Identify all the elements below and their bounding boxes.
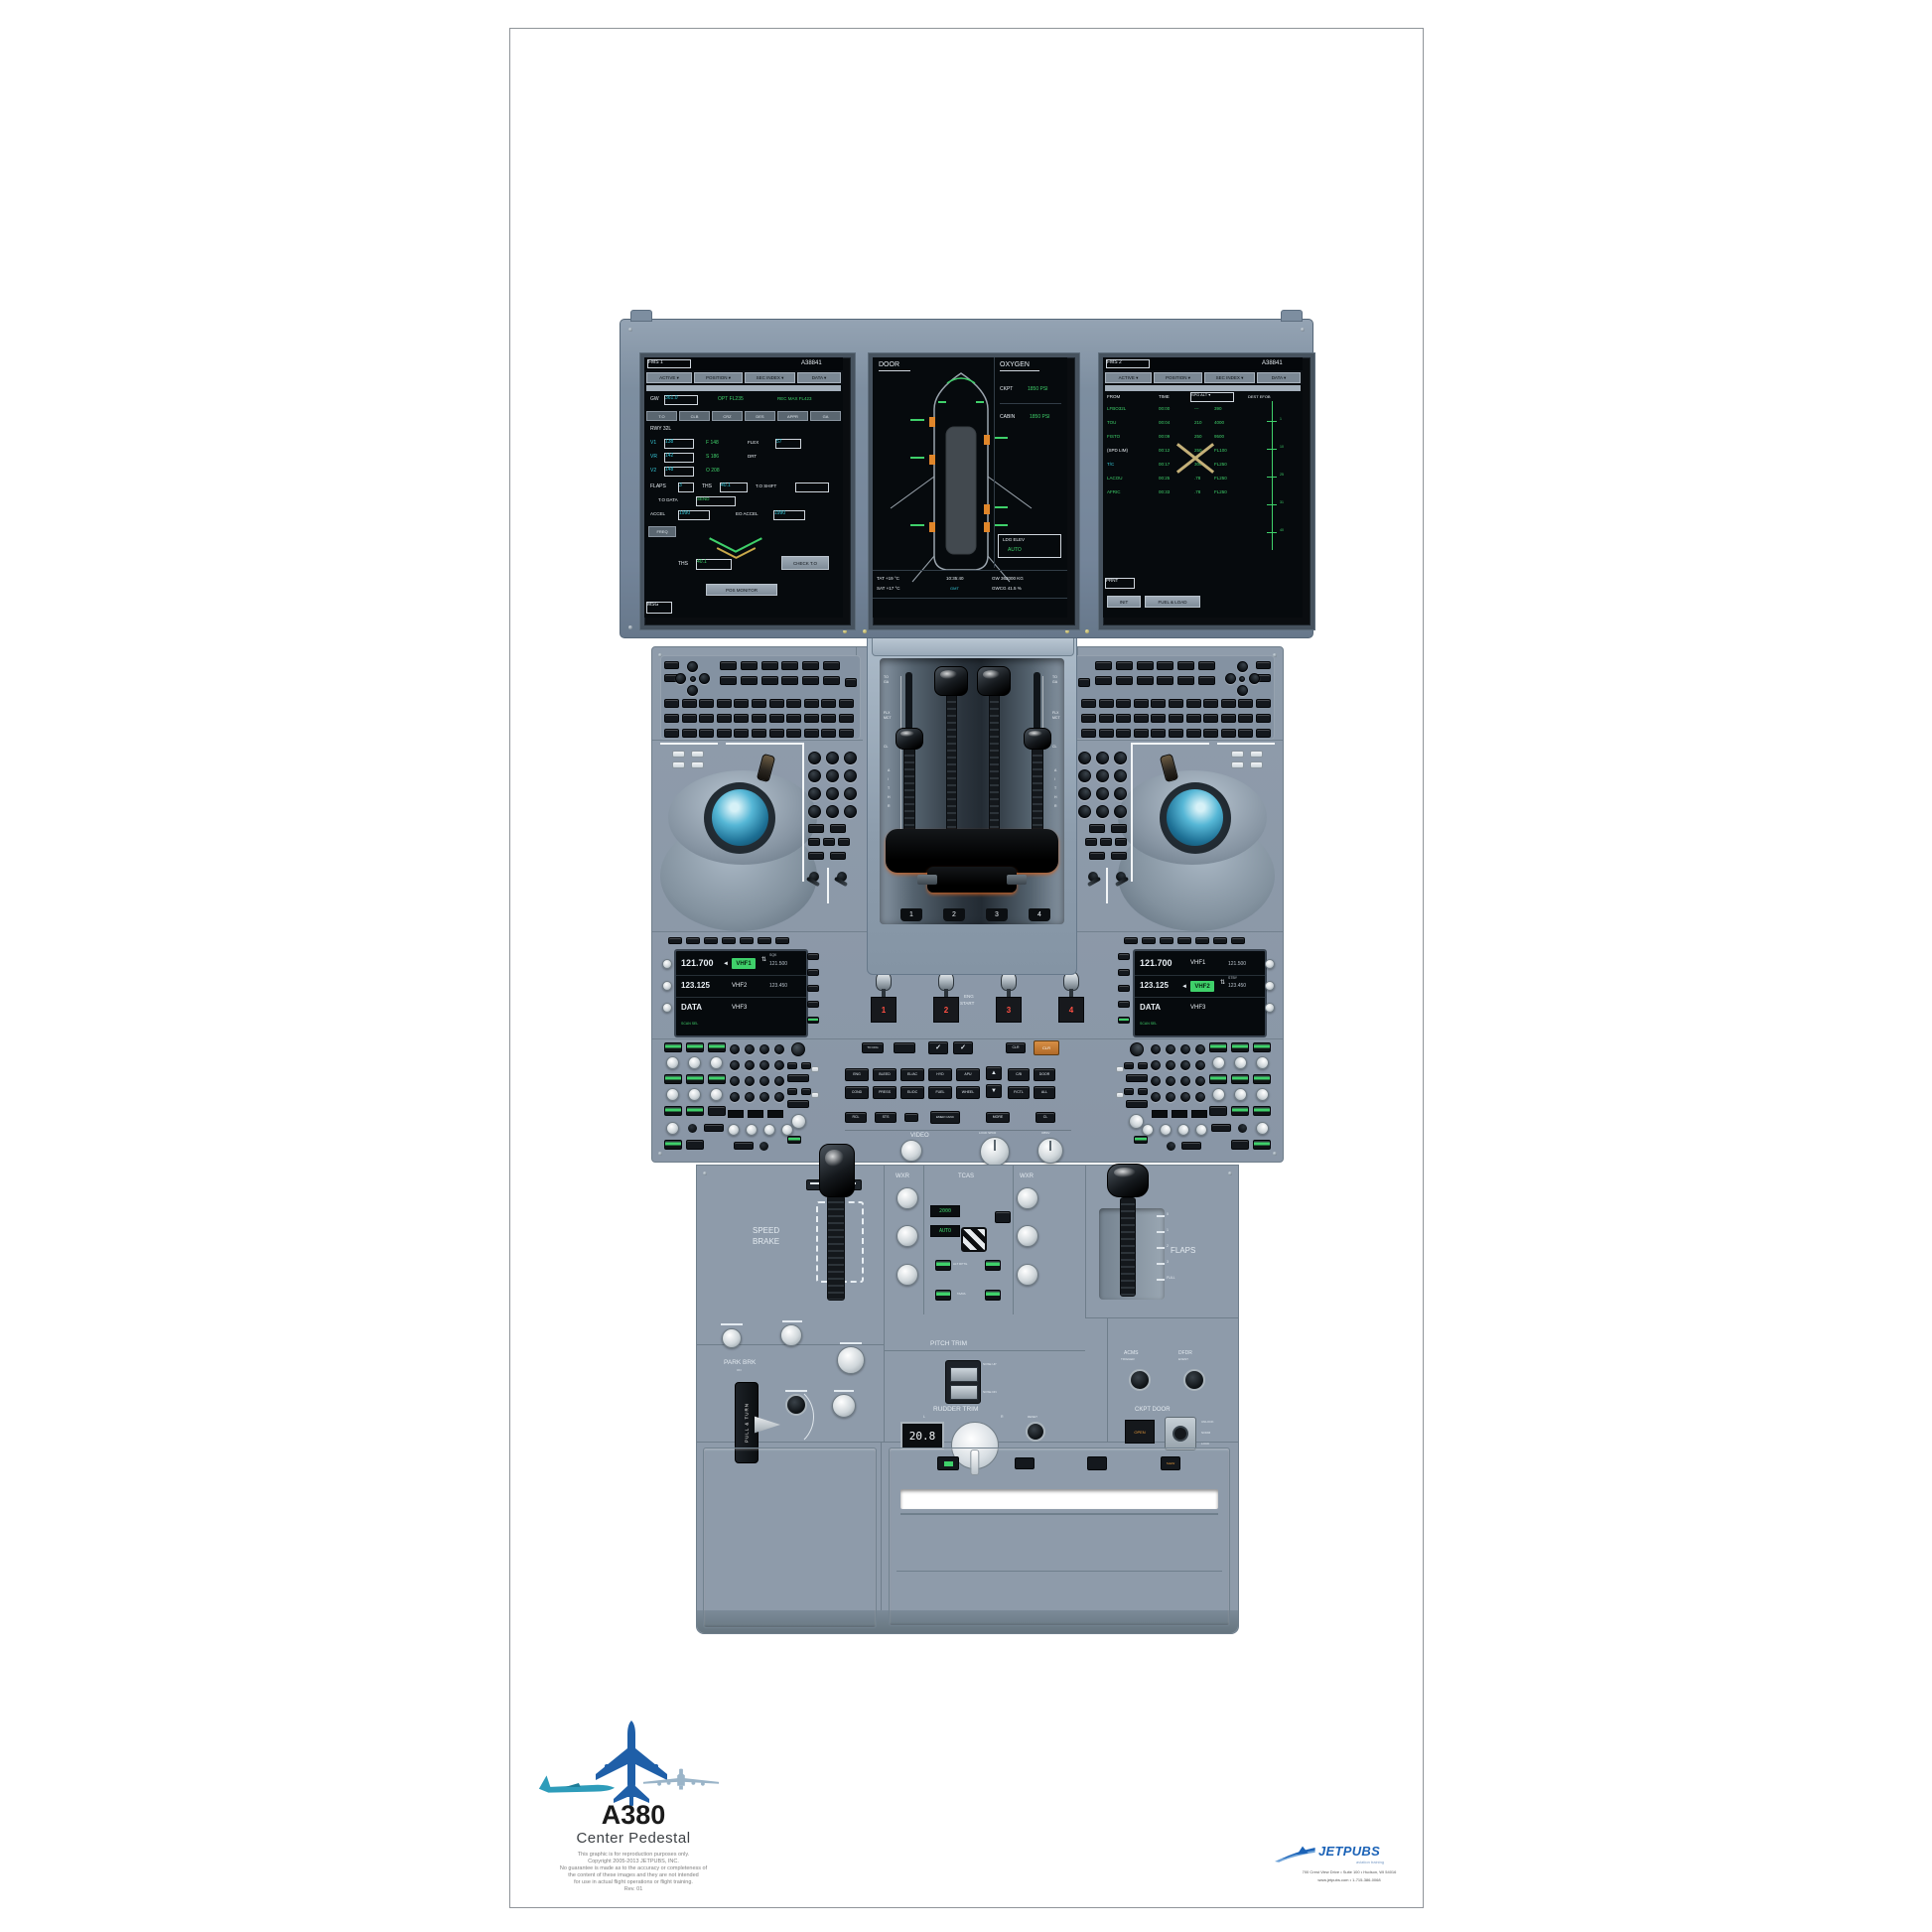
trackball-module-left xyxy=(660,743,861,935)
panel-detail: FMS 1 xyxy=(647,359,691,368)
panel-detail xyxy=(897,1571,1222,1572)
wxr-mode-knob xyxy=(897,1264,918,1286)
wxr-tilt-knob xyxy=(897,1225,918,1247)
panel-detail: 00:33 xyxy=(1159,490,1170,495)
acp-knob xyxy=(745,1076,755,1086)
numpad-key xyxy=(826,805,839,818)
divider-line xyxy=(1106,868,1108,903)
pedestal-lower-body: SPEEDBRAKE WXRTCASWXR2000AUTOALT RPTGTA/… xyxy=(696,1165,1239,1634)
speed-brake-lever-knob xyxy=(819,1144,855,1197)
panel-detail xyxy=(1272,401,1273,550)
jetpubs-logo-swoosh xyxy=(1275,1846,1316,1863)
panel-detail: DATA ▾ xyxy=(797,372,841,383)
acp-knob xyxy=(1151,1060,1161,1070)
panel-detail xyxy=(845,1130,1071,1131)
acp-knob xyxy=(774,1060,784,1070)
ecam-control-panel: TO CFG✓✓CLRCLRENGBLEEDEL/ACHYDAPU▲C/BDOO… xyxy=(837,1036,1093,1162)
acp-call-key xyxy=(1253,1042,1271,1052)
acp-key xyxy=(1124,1088,1134,1095)
numpad-key xyxy=(844,805,857,818)
acp-volume-knob xyxy=(1177,1124,1189,1136)
panel-detail: DEST EFOB xyxy=(1248,395,1271,399)
deco xyxy=(660,935,821,1040)
panel-detail: 31 xyxy=(1280,501,1284,505)
panel-detail xyxy=(795,483,829,492)
ecp-key xyxy=(904,1113,918,1122)
numpad-key xyxy=(1114,752,1127,764)
rudder-trim-reset-label: RESET xyxy=(1028,1416,1037,1419)
panel-detail xyxy=(994,357,995,568)
panel-detail xyxy=(1281,310,1303,322)
flaps-lever-knob xyxy=(1107,1164,1149,1197)
panel-detail: LDG ELEV xyxy=(1003,538,1025,543)
panel-detail: 57 xyxy=(775,439,801,449)
dpad-left-key xyxy=(1249,673,1260,684)
numpad-key xyxy=(1115,838,1127,846)
audio-control-panel-right xyxy=(1114,1040,1275,1158)
acp-key xyxy=(787,1062,797,1069)
bracket-line xyxy=(1133,743,1209,745)
cond-page-key: COND xyxy=(845,1086,869,1099)
panel-detail: H xyxy=(888,796,891,800)
speed-brake-label: SPEED xyxy=(753,1227,779,1235)
panel-detail: R xyxy=(1001,1416,1004,1420)
eng-1-fault-light: 1 xyxy=(871,997,897,1023)
panel-detail xyxy=(843,629,847,633)
acp-knob xyxy=(745,1044,755,1054)
acp-knob xyxy=(774,1092,784,1102)
check-key: ✓ xyxy=(953,1041,973,1054)
panel-detail: CABIN xyxy=(1000,415,1015,420)
dpad-down-key xyxy=(1237,685,1248,696)
panel-detail: THS xyxy=(678,562,688,567)
panel-detail: ACTIVE ▾ xyxy=(1105,372,1152,383)
panel-detail: 3 xyxy=(1167,1261,1169,1265)
deco: the content of these images and they are… xyxy=(534,1872,733,1879)
panel-detail xyxy=(1157,1263,1165,1265)
eldc-page-key: EL/DC xyxy=(900,1086,924,1099)
panel-detail: VR xyxy=(650,455,657,460)
panel-detail xyxy=(1157,1279,1165,1281)
panel-detail: DES xyxy=(745,411,775,421)
bracket-line xyxy=(726,743,802,745)
mfd-left-screen: FMS 1A38841ACTIVE ▾POSITION ▾SEC INDEX ▾… xyxy=(644,357,843,618)
display-bezel: FMS 1A38841ACTIVE ▾POSITION ▾SEC INDEX ▾… xyxy=(620,319,1313,638)
panel-detail: 10:35:40 xyxy=(946,577,964,582)
acp-volume-knob xyxy=(763,1124,775,1136)
acp-call-key xyxy=(1253,1106,1271,1116)
panel-detail: FLX xyxy=(884,712,890,716)
kccu-key xyxy=(1078,678,1090,687)
rmp-key xyxy=(1118,953,1130,960)
acp-call-key xyxy=(787,1136,801,1144)
panel-detail xyxy=(628,625,632,629)
panel-detail: 00:00 xyxy=(1159,407,1170,412)
deco xyxy=(1114,1040,1275,1158)
acp-knob xyxy=(1166,1060,1175,1070)
wxr-mode-knob xyxy=(1017,1264,1038,1286)
acp-volume-knob xyxy=(1256,1088,1269,1101)
panel-detail: 40.1 xyxy=(720,483,748,492)
panel-detail: FLEX xyxy=(748,441,759,446)
acp-key xyxy=(1181,1142,1201,1150)
acp-knob xyxy=(1180,1076,1190,1086)
hyd-page-key: HYD xyxy=(928,1068,952,1081)
panel-detail: (SPD LIM) xyxy=(1107,449,1128,454)
acp-knob xyxy=(1195,1060,1205,1070)
numpad-key xyxy=(808,805,821,818)
acp-key xyxy=(686,1140,704,1150)
panel-detail: 9500 xyxy=(1214,435,1224,440)
panel-detail xyxy=(900,1513,1218,1515)
clr-lit-key: CLR xyxy=(1034,1040,1059,1055)
acp-knob xyxy=(1180,1092,1190,1102)
panel-detail: PRNT xyxy=(1105,578,1135,589)
panel-detail: RWY 32L xyxy=(650,427,671,432)
alt-rptg-label: ALT RPTG xyxy=(953,1263,967,1266)
dpad-down-key xyxy=(687,685,698,696)
panel-detail xyxy=(1267,477,1277,478)
acp-knob xyxy=(759,1076,769,1086)
rmp-key xyxy=(1118,985,1130,992)
acp-volume-knob xyxy=(710,1088,723,1101)
panel-detail xyxy=(652,740,863,741)
dpad-right-key xyxy=(699,673,710,684)
pitch-trim-paddle-up xyxy=(950,1367,978,1382)
acp-knob xyxy=(730,1076,740,1086)
deco xyxy=(679,1786,683,1790)
acp-knob xyxy=(730,1092,740,1102)
acp-key xyxy=(1124,1062,1134,1069)
pitch-trim-label: PITCH TRIM xyxy=(930,1341,967,1348)
acp-knob xyxy=(1130,1042,1144,1056)
pitch-trim-switch xyxy=(945,1360,981,1404)
deco: No guarantee is made as to the accuracy … xyxy=(534,1865,733,1872)
panel-detail: GA xyxy=(1052,681,1057,685)
eng-start-label: START xyxy=(960,1002,974,1007)
acp-volume-knob xyxy=(781,1124,793,1136)
panel-detail: OXYGEN xyxy=(1000,361,1030,368)
numpad-key xyxy=(1111,852,1127,860)
panel-detail xyxy=(1301,328,1305,332)
ta-ra-key xyxy=(985,1290,1001,1301)
acp-volume-knob xyxy=(1160,1124,1172,1136)
panel-detail: R xyxy=(1054,805,1057,809)
rmp-key xyxy=(807,953,819,960)
acp-call-key xyxy=(664,1042,682,1052)
acp-key xyxy=(811,1066,819,1072)
numpad-key xyxy=(826,752,839,764)
acp-knob xyxy=(759,1044,769,1054)
wxr-right-label: WXR xyxy=(1020,1173,1034,1179)
panel-detail: A38841 xyxy=(801,360,822,366)
speed-brake-panel: SPEEDBRAKE xyxy=(697,1166,884,1344)
rmp-key xyxy=(807,985,819,992)
acp-key xyxy=(734,1142,754,1150)
video-label: VIDEO xyxy=(910,1133,929,1139)
panel-detail: FISTO xyxy=(1107,435,1120,440)
panel-detail xyxy=(1000,370,1039,371)
eng-2-fault-light: 2 xyxy=(933,997,959,1023)
panel-detail: 138 xyxy=(664,439,694,449)
acp-volume-knob xyxy=(1129,1114,1144,1129)
acp-key xyxy=(787,1100,809,1108)
xpdr-selector-knob xyxy=(961,1227,987,1252)
panel-detail: 1 xyxy=(1280,418,1282,422)
kccu-key xyxy=(845,678,857,687)
acp-key xyxy=(801,1088,811,1095)
rmp-key xyxy=(807,969,819,976)
up-arrow-key: ▲ xyxy=(986,1066,1002,1080)
acms-trigger-button xyxy=(1129,1369,1151,1391)
panel-detail xyxy=(873,570,1067,571)
panel-detail: 361.0 xyxy=(664,395,698,405)
printer-key xyxy=(937,1456,959,1470)
panel-detail: 1850 PSI xyxy=(1028,387,1048,392)
panel-detail: 25 xyxy=(1280,474,1284,478)
jetpubs-contact: www.jetpubs.com • 1-715-386-0068 xyxy=(1275,1877,1424,1882)
panel-detail xyxy=(628,328,632,332)
audio-control-panel-left xyxy=(660,1040,821,1158)
dpad-left-key xyxy=(675,673,686,684)
panel-detail xyxy=(646,385,841,391)
panel-detail: 4000 xyxy=(1214,421,1224,426)
kccu-white-key xyxy=(1250,761,1263,768)
poster-branding: A380 Center Pedestal This graphic is for… xyxy=(530,1709,768,1907)
acp-call-key xyxy=(686,1042,704,1052)
panel-detail: POSITION ▾ xyxy=(694,372,743,383)
panel-detail: MCT xyxy=(884,717,892,721)
acp-call-key xyxy=(1231,1074,1249,1084)
deco: DOOROXYGENCKPT1850 PSICABIN1850 PSILDG E… xyxy=(873,357,1067,618)
rmp-key xyxy=(1118,1001,1130,1008)
panel-detail: 250 xyxy=(1194,435,1202,440)
acp-key xyxy=(1116,1092,1124,1098)
pitch-trim-paddle-down xyxy=(950,1385,978,1400)
ecam-center-frame: DOOROXYGENCKPT1850 PSICABIN1850 PSILDG E… xyxy=(869,353,1079,629)
down-arrow-key: ▼ xyxy=(986,1084,1002,1098)
kccu-white-key xyxy=(691,751,704,758)
panel-detail: TO xyxy=(1052,676,1057,680)
brk-fan-knob xyxy=(722,1328,742,1348)
acp-knob xyxy=(759,1092,769,1102)
panel-detail: CLB xyxy=(679,411,710,421)
deco: SLEW xyxy=(881,1442,1238,1633)
kccu-key xyxy=(664,661,679,669)
acp-volume-knob xyxy=(1256,1122,1269,1135)
eng-3-fault-light: 3 xyxy=(996,997,1022,1023)
panel-detail: T.O xyxy=(646,411,677,421)
dpad-right-key xyxy=(1225,673,1236,684)
panel-detail xyxy=(873,598,1067,599)
panel-detail: R xyxy=(888,805,891,809)
acp-volume-knob xyxy=(1212,1056,1225,1069)
kccu-keyboard-right xyxy=(1074,655,1275,740)
kccu-rocker xyxy=(1160,754,1179,782)
thrust-lever-2-tab: 2 xyxy=(943,908,965,921)
acp-volume-knob xyxy=(1234,1088,1247,1101)
acp-volume-knob xyxy=(1142,1124,1154,1136)
panel-detail: FLAPS xyxy=(650,484,666,489)
printer-panel: SLEW xyxy=(881,1442,1238,1633)
rmp-right: 121.700VHF1121.500123.125◄VHF2⇅STBY123.4… xyxy=(1116,935,1277,1040)
panel-detail xyxy=(1000,403,1061,404)
acp-volume-knob xyxy=(710,1056,723,1069)
panel-detail: 00:17 xyxy=(1159,463,1170,468)
panel-detail: TO xyxy=(884,676,889,680)
panel-detail: OPT FL235 xyxy=(718,397,744,402)
panel-detail: V2 xyxy=(650,469,656,474)
panel-detail: FL100 xyxy=(1214,449,1227,454)
panel-detail: O 208 xyxy=(706,469,720,474)
acp-key xyxy=(787,1074,809,1082)
panel-detail: 1990 xyxy=(678,510,710,520)
acp-knob xyxy=(1180,1060,1190,1070)
park-brk-label: PARK BRK xyxy=(724,1360,756,1367)
poster-subtitle: Center Pedestal xyxy=(576,1830,690,1847)
panel-detail: GMT xyxy=(950,587,959,591)
deco xyxy=(643,1773,719,1785)
panel-knob xyxy=(780,1324,802,1346)
kccu-white-key xyxy=(672,761,685,768)
deco xyxy=(605,1764,610,1773)
thrust-lever-3-tab: 3 xyxy=(986,908,1008,921)
deco: 12ENGSTART34 xyxy=(861,967,1079,1038)
jetpubs-logo-text: JETPUBS xyxy=(1318,1844,1380,1859)
panel-detail xyxy=(630,310,652,322)
flaps-panel: FLAPS0123FULL xyxy=(1085,1166,1238,1317)
ta-ra-label: TA/RA xyxy=(957,1293,966,1296)
panel-detail: NORM xyxy=(1201,1432,1210,1435)
panel-detail: H xyxy=(1054,796,1057,800)
acp-knob xyxy=(1180,1044,1190,1054)
panel-detail: .78 xyxy=(1194,477,1200,482)
eng-4-fault-light: 4 xyxy=(1058,997,1084,1023)
tcas-key xyxy=(995,1211,1011,1223)
wxr-left-label: WXR xyxy=(896,1173,909,1179)
acp-call-key xyxy=(708,1074,726,1084)
jetpubs-branding: JETPUBS aviation training 700 Crest View… xyxy=(1275,1834,1424,1905)
numpad-key xyxy=(1114,787,1127,800)
emer-canc-key: EMER CANC xyxy=(930,1111,960,1124)
acms-label: ACMS xyxy=(1124,1351,1138,1356)
panel-detail: 1990 xyxy=(773,510,805,520)
deco xyxy=(1116,935,1277,1040)
acp-knob xyxy=(791,1042,805,1056)
panel-detail: POSITION ▾ xyxy=(1154,372,1202,383)
acp-key xyxy=(1116,1066,1124,1072)
dpad-up-key xyxy=(687,661,698,672)
loudspeaker-label: LOUD SPKR xyxy=(979,1132,996,1135)
acp-knob xyxy=(759,1060,769,1070)
acp-volume-knob xyxy=(1212,1088,1225,1101)
park-brake-panel: PARK BRKON PULL & TURN xyxy=(697,1320,884,1442)
deco: Copyright 2005-2013 JETPUBS, INC. xyxy=(534,1859,733,1865)
elac-page-key: EL/AC xyxy=(900,1068,924,1081)
mfd-right-screen: FMS 2A38841ACTIVE ▾POSITION ▾SEC INDEX ▾… xyxy=(1103,357,1303,618)
acp-knob xyxy=(1166,1076,1175,1086)
acp-volume-knob xyxy=(666,1056,679,1069)
acp-call-key xyxy=(1134,1136,1148,1144)
acp-key xyxy=(1138,1088,1148,1095)
kccu-rocker xyxy=(757,754,776,782)
deco xyxy=(691,1781,695,1785)
panel-detail: GA xyxy=(810,411,841,421)
thrust-lever-4-tab: 4 xyxy=(1029,908,1050,921)
eng-page-key: ENG xyxy=(845,1068,869,1081)
bracket-line xyxy=(1217,743,1275,745)
numpad-key xyxy=(808,752,821,764)
numpad-key xyxy=(1111,824,1127,833)
all-key: ALL xyxy=(1034,1086,1055,1099)
acp-volume-knob xyxy=(1256,1056,1269,1069)
panel-detail: V1 xyxy=(650,441,656,446)
acp-volume-knob xyxy=(1234,1056,1247,1069)
panel-detail: SAT +17 °C xyxy=(877,587,900,592)
acp-key xyxy=(1209,1106,1227,1116)
emer-flap-knob xyxy=(837,1346,865,1374)
numpad-key xyxy=(838,838,850,846)
rmp-left: 121.700◄VHF1⇅SQK121.500123.125VHF2123.45… xyxy=(660,935,821,1040)
fctl-page-key: F/CTL xyxy=(1008,1086,1030,1099)
trackball-module-right xyxy=(1074,743,1275,935)
panel-detail: T.O DATA xyxy=(658,498,678,503)
acp-readout xyxy=(1152,1110,1168,1118)
panel-detail: AUTO xyxy=(1008,548,1022,553)
acp-key xyxy=(787,1088,797,1095)
panel-detail xyxy=(1157,1247,1165,1249)
numpad-key xyxy=(844,787,857,800)
acp-knob xyxy=(1151,1092,1161,1102)
acp-call-key xyxy=(664,1106,682,1116)
deco xyxy=(701,1782,705,1786)
panel-detail: F 148 xyxy=(706,441,719,446)
dpad-center-key xyxy=(1240,676,1246,682)
panel-detail xyxy=(1267,532,1277,533)
acp-key xyxy=(704,1124,724,1132)
kccu-white-key xyxy=(691,761,704,768)
stowage-door xyxy=(703,1448,877,1628)
acp-toggle xyxy=(688,1124,697,1133)
numpad-key xyxy=(826,769,839,782)
press-page-key: PRESS xyxy=(873,1086,897,1099)
acp-knob xyxy=(745,1092,755,1102)
bleed-page-key: BLEED xyxy=(873,1068,897,1081)
rmp-round-btn xyxy=(1265,959,1275,969)
acp-key xyxy=(811,1092,819,1098)
acp-toggle xyxy=(759,1142,768,1151)
acp-call-key xyxy=(1231,1042,1249,1052)
wxr-tilt-knob xyxy=(1017,1225,1038,1247)
numpad-key xyxy=(1114,805,1127,818)
panel-detail: TAT +19 °C xyxy=(877,577,899,582)
acp-volume-knob xyxy=(746,1124,758,1136)
deco: TO CFG✓✓CLRCLRENGBLEEDEL/ACHYDAPU▲C/BDOO… xyxy=(837,1036,1093,1162)
deco xyxy=(643,1769,719,1790)
acp-knob xyxy=(774,1044,784,1054)
rmp-round-btn xyxy=(662,1003,672,1013)
numpad-key xyxy=(808,769,821,782)
acp-knob xyxy=(1195,1076,1205,1086)
dfdr-event-button xyxy=(1183,1369,1205,1391)
panel-detail: 00:04 xyxy=(1159,421,1170,426)
panel-detail xyxy=(1072,740,1283,741)
jetpubs-tagline: aviation training xyxy=(1356,1860,1384,1864)
acp-call-key xyxy=(1209,1042,1227,1052)
panel-detail: NOSE UP xyxy=(983,1363,997,1366)
panel-detail: .78 xyxy=(1194,490,1200,495)
panel-detail: TOU xyxy=(1107,421,1116,426)
